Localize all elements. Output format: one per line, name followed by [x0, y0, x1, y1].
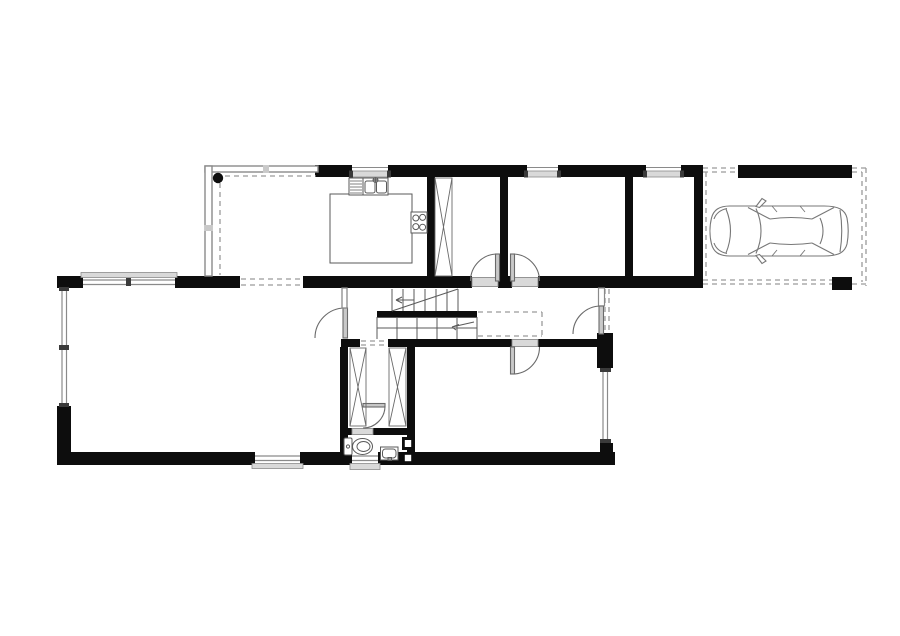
carport-roof-right: [862, 168, 866, 286]
wardrobe-closet-room: [435, 178, 452, 276]
cooktop: [411, 212, 427, 233]
window-mullion: [59, 345, 69, 350]
stairs-down-arrow: [452, 322, 474, 330]
glazing-tick-north: [263, 166, 269, 173]
wardrobe-corridor-left: [350, 348, 366, 426]
sill-closet-room: [472, 278, 498, 287]
wall-band-3: [303, 276, 472, 288]
carport-wall-north: [738, 165, 852, 178]
conservatory: [205, 166, 319, 277]
wall-east-top-wing: [694, 165, 703, 288]
car-top-view: [710, 199, 848, 264]
window-bedroom-se: [600, 368, 613, 443]
door-bedroom-center: [511, 254, 540, 281]
wall-band-4: [498, 276, 512, 288]
carport-post: [832, 277, 852, 290]
carport-roof-top-left: [703, 168, 738, 172]
wall-wc-north-1: [341, 428, 352, 435]
column-dot: [213, 173, 223, 183]
carport-roof-top-right: [852, 168, 866, 172]
toilet: [344, 438, 373, 455]
wall-north-2: [387, 165, 528, 177]
wall-band-2: [175, 276, 240, 288]
kitchen-sink: [363, 178, 388, 196]
wall-hall-south-1: [341, 339, 360, 347]
window-mullion: [126, 278, 131, 286]
wall-kitchen-closet: [427, 177, 435, 276]
door-living-room: [315, 308, 348, 338]
washbasin: [381, 447, 399, 461]
wall-north-3: [557, 165, 646, 177]
window-storage: [643, 165, 684, 178]
sill-wc: [352, 429, 373, 435]
wall-north-1: [315, 165, 353, 177]
wall-wc-north-2: [373, 428, 415, 435]
wardrobe-corridor-right: [389, 348, 406, 426]
stairs-up-arrow: [396, 297, 414, 303]
wall-east-entry-corner: [597, 333, 613, 368]
dishwasher: [349, 178, 363, 195]
wall-band-1: [57, 276, 83, 288]
entry-overhang: [605, 289, 609, 334]
wall-band-5: [538, 276, 703, 288]
window-kitchen: [349, 165, 391, 178]
void-outline: [478, 312, 542, 336]
entry-sidelight: [599, 288, 605, 306]
door-closet-room: [471, 254, 500, 281]
sill-bedroom-center: [512, 278, 538, 287]
floor-plan-canvas: [0, 0, 900, 636]
stairs-lower-flight: [377, 317, 477, 339]
door-bedroom-se: [511, 347, 540, 374]
carport-roof-bottom: [703, 280, 832, 284]
basin-tap-icon: [388, 458, 392, 461]
conservatory-wall-west: [205, 166, 212, 276]
stair-landing-wall: [377, 311, 477, 317]
wall-east-lower-corner: [600, 443, 613, 465]
stairs-upper-flight: [392, 289, 458, 311]
wall-hall-south-3: [538, 339, 600, 347]
partition-hall-living: [342, 288, 347, 308]
door-entrance: [573, 306, 604, 334]
wall-bedroom-storage: [625, 177, 633, 276]
window-living-west: [57, 287, 71, 407]
window-bedroom-center: [524, 165, 561, 178]
wall-closet-bedroom: [500, 177, 508, 276]
kitchen-counter: [330, 194, 412, 263]
glazing-tick-west: [205, 225, 213, 231]
wall-hall-south-2: [388, 339, 512, 347]
conservatory-dashed-edge: [220, 176, 316, 275]
window-living-south: [252, 452, 303, 469]
sill-bedroom-se: [512, 340, 538, 347]
conservatory-wall-north: [205, 166, 318, 172]
floor-plan-drawing: [0, 0, 900, 636]
window-living-north: [81, 273, 177, 289]
kitchen: [330, 178, 427, 264]
wall-south-1: [57, 452, 255, 465]
